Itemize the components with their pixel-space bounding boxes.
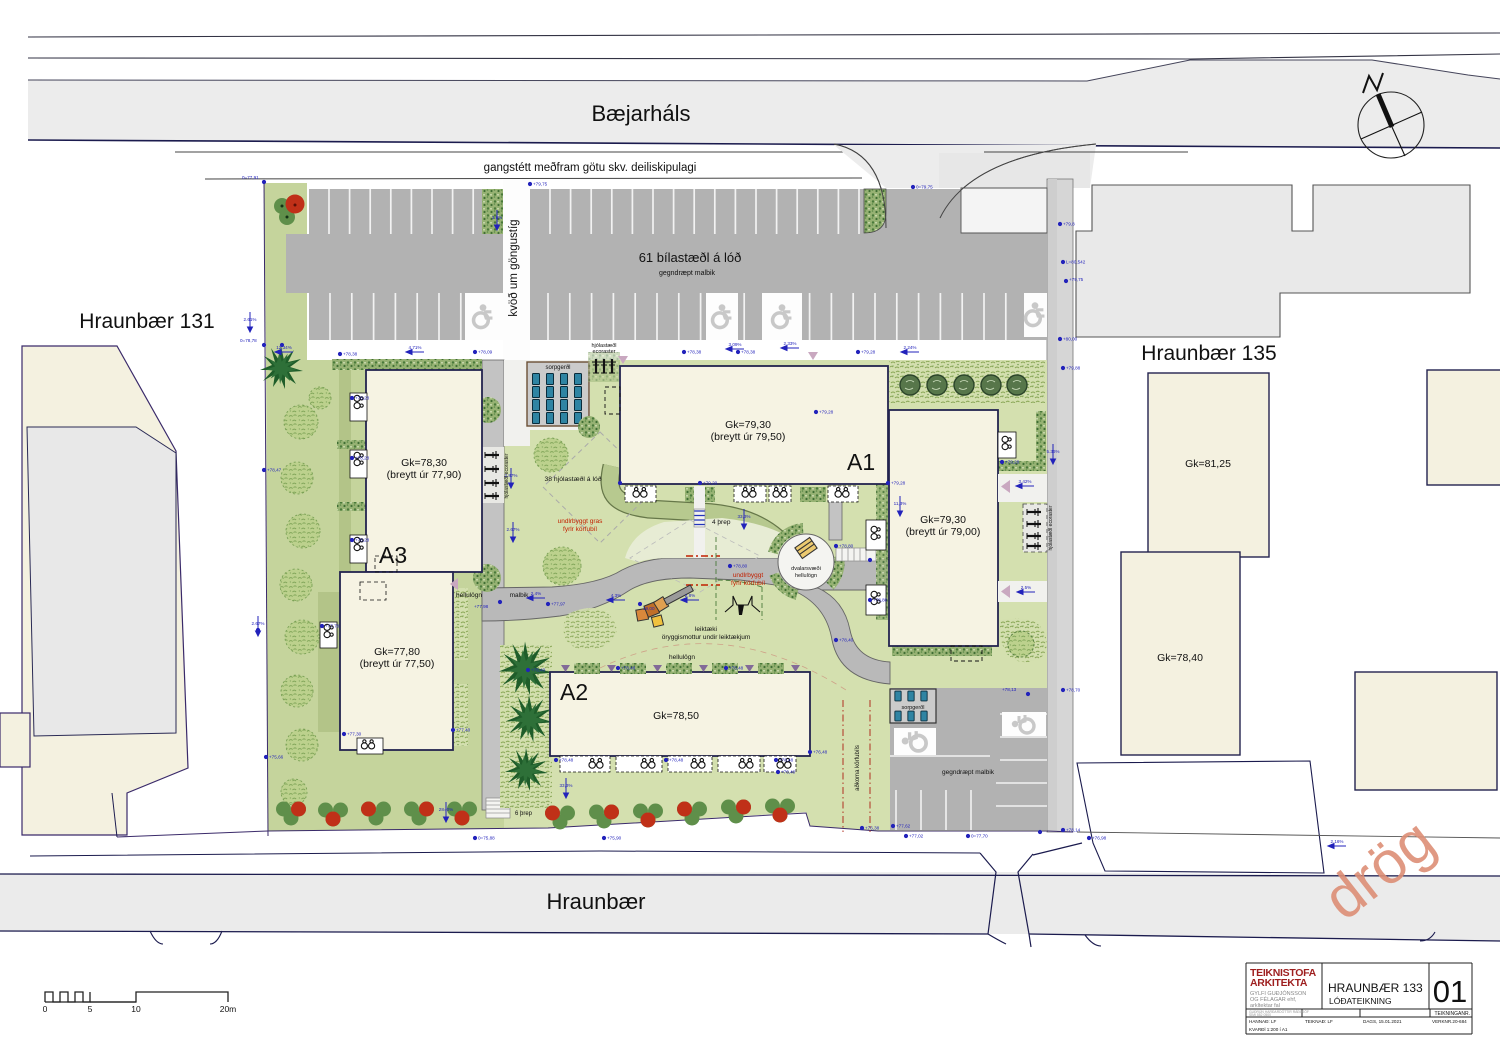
svg-text:+76,98: +76,98	[1092, 836, 1107, 841]
svg-text:0=77,91: 0=77,91	[242, 175, 259, 180]
svg-text:ecoraster: ecoraster	[593, 349, 616, 355]
svg-text:hjólastæðl ecoraster: hjólastæðl ecoraster	[1047, 505, 1054, 550]
svg-text:fyrlr körfubíl: fyrlr körfubíl	[563, 526, 598, 533]
svg-text:+78,38: +78,38	[741, 350, 756, 355]
svg-text:A3: A3	[379, 542, 407, 568]
svg-text:öryggismottur undir leiktækjum: öryggismottur undir leiktækjum	[662, 634, 751, 641]
svg-text:+78,48: +78,48	[779, 758, 794, 763]
svg-text:dvalarsvæði: dvalarsvæði	[791, 565, 821, 572]
svg-text:+76,40: +76,40	[781, 770, 796, 775]
svg-text:hellulögn: hellulögn	[795, 573, 817, 579]
svg-text:Bæjarháls: Bæjarháls	[591, 101, 690, 126]
svg-text:2.16%: 2.16%	[1330, 839, 1343, 844]
svg-text:0: 0	[43, 1004, 48, 1014]
svg-text:kvöð um göngustíg: kvöð um göngustíg	[508, 219, 520, 316]
svg-text:Gk=78,50: Gk=78,50	[653, 710, 699, 722]
svg-text:+79,28: +79,28	[861, 350, 876, 355]
svg-text:Gk=79,30: Gk=79,30	[725, 419, 771, 431]
svg-text:+78,48: +78,48	[669, 758, 684, 763]
svg-text:Hraunbær: Hraunbær	[546, 889, 645, 914]
svg-text:(breytt úr 79,50): (breytt úr 79,50)	[711, 431, 786, 443]
svg-text:TEIKNAÐ: LF: TEIKNAÐ: LF	[1305, 1019, 1333, 1024]
svg-text:+78,38: +78,38	[343, 352, 358, 357]
svg-text:+80,00: +80,00	[1063, 337, 1078, 342]
svg-text:sorpgerðl: sorpgerðl	[902, 704, 925, 711]
svg-text:+78,47: +78,47	[267, 468, 282, 473]
svg-text:GYLFI GUÐJÓNSSON: GYLFI GUÐJÓNSSON	[1250, 990, 1306, 997]
svg-text:hellulögn: hellulögn	[669, 654, 695, 661]
svg-text:+76,48: +76,48	[813, 750, 828, 755]
svg-text:Hraunbær 131: Hraunbær 131	[79, 310, 214, 333]
svg-text:ARKITEKTA: ARKITEKTA	[1250, 977, 1308, 989]
svg-text:+77,97: +77,97	[551, 602, 566, 607]
svg-text:12,34%: 12,34%	[276, 345, 292, 350]
svg-text:(breytt úr 77,50): (breytt úr 77,50)	[360, 658, 435, 670]
svg-text:fyrlr körfubíl: fyrlr körfubíl	[731, 580, 766, 587]
svg-text:L=80,542: L=80,542	[1066, 260, 1086, 265]
svg-text:19,00: 19,00	[643, 606, 655, 611]
svg-text:aðkoma körfubíls: aðkoma körfubíls	[854, 745, 861, 791]
svg-text:+79,8: +79,8	[1063, 222, 1075, 227]
svg-text:+75,90: +75,90	[607, 836, 622, 841]
svg-text:+79,75: +79,75	[533, 182, 548, 187]
svg-text:6 þrep: 6 þrep	[515, 811, 533, 817]
svg-text:+77,78: +77,78	[325, 624, 340, 629]
svg-text:sorpgerðl: sorpgerðl	[545, 364, 570, 371]
svg-text:DAGS, 15.01.2021: DAGS, 15.01.2021	[1363, 1019, 1402, 1024]
svg-text:(breytt úr 77,90): (breytt úr 77,90)	[387, 469, 462, 481]
svg-text:61 bílastæðl á lóð: 61 bílastæðl á lóð	[639, 250, 742, 265]
svg-text:VERKNR.20-684: VERKNR.20-684	[1432, 1019, 1467, 1024]
svg-text:gegndræpt malbik: gegndræpt malbik	[942, 769, 995, 776]
svg-text:+78,48: +78,48	[729, 666, 744, 671]
svg-text:3.09%: 3.09%	[728, 342, 741, 347]
svg-text:undlrbyggt: undlrbyggt	[733, 572, 764, 579]
svg-text:0=79,75: 0=79,75	[916, 185, 933, 190]
svg-text:+79,28: +79,28	[891, 481, 906, 486]
svg-text:Gk=79,30: Gk=79,30	[920, 514, 966, 526]
svg-text:+79,20: +79,20	[703, 481, 718, 486]
svg-text:Hraunbær 135: Hraunbær 135	[1141, 342, 1276, 365]
svg-text:+77,30: +77,30	[347, 732, 362, 737]
svg-text:+79,75: +79,75	[1069, 277, 1084, 282]
svg-text:Gk=78,40: Gk=78,40	[1157, 652, 1203, 664]
svg-text:+78,28: +78,28	[355, 456, 370, 461]
svg-text:Gk=78,30: Gk=78,30	[401, 457, 447, 469]
svg-text:+77,98: +77,98	[474, 604, 489, 609]
svg-text:leiktæki: leiktæki	[695, 626, 717, 633]
svg-text:+78,80: +78,80	[839, 544, 854, 549]
svg-text:+79,88: +79,88	[1066, 366, 1081, 371]
svg-text:TEIKNINGANR.: TEIKNINGANR.	[1434, 1011, 1470, 1017]
svg-text:+78,80: +78,80	[733, 564, 748, 569]
svg-text:5: 5	[88, 1004, 93, 1014]
svg-text:3.42%: 3.42%	[1018, 479, 1031, 484]
svg-text:38 hjólastæðl á lóð: 38 hjólastæðl á lóð	[544, 475, 601, 483]
svg-text:+75,66: +75,66	[269, 755, 284, 760]
svg-text:+78,40: +78,40	[839, 638, 854, 643]
svg-text:+77,62: +77,62	[896, 824, 911, 829]
svg-text:10: 10	[131, 1004, 141, 1014]
svg-text:+78,38: +78,38	[687, 350, 702, 355]
svg-text:2.33%: 2.33%	[783, 341, 796, 346]
svg-text:0=78,78: 0=78,78	[240, 338, 257, 343]
svg-text:+78,09: +78,09	[478, 350, 493, 355]
svg-text:Gk=81,25: Gk=81,25	[1185, 458, 1231, 470]
svg-text:LÓÐATEIKNING: LÓÐATEIKNING	[1329, 996, 1392, 1006]
svg-text:arkltektar fal: arkltektar fal	[1250, 1003, 1280, 1009]
svg-text:4 þrep: 4 þrep	[712, 519, 731, 526]
svg-text:0=75,88: 0=75,88	[478, 836, 495, 841]
svg-text:+77,02: +77,02	[909, 834, 924, 839]
svg-text:gangstétt meðfram götu skv. de: gangstétt meðfram götu skv. deiliskipula…	[484, 162, 697, 174]
svg-text:+78,48: +78,48	[621, 666, 636, 671]
svg-text:undlrbyggt gras: undlrbyggt gras	[558, 518, 604, 525]
svg-text:0=77,70: 0=77,70	[971, 834, 988, 839]
svg-text:KVARÐl 1:200 í A1: KVARÐl 1:200 í A1	[1249, 1027, 1288, 1032]
svg-text:hjólastæðl: hjólastæðl	[591, 342, 616, 349]
svg-text:+78,48: +78,48	[559, 758, 574, 763]
svg-text:A1: A1	[847, 449, 875, 475]
svg-text:HANNAÐ: LF: HANNAÐ: LF	[1249, 1019, 1277, 1024]
svg-text:+78,28: +78,28	[355, 538, 370, 543]
svg-text:Gk=77,80: Gk=77,80	[374, 646, 420, 658]
svg-text:+77,40: +77,40	[456, 728, 471, 733]
svg-text:+76,38: +76,38	[865, 826, 880, 831]
svg-text:2.24%: 2.24%	[903, 345, 916, 350]
svg-text:+78,70: +78,70	[1066, 688, 1081, 693]
svg-text:+78,28: +78,28	[355, 396, 370, 401]
svg-text:4.71%: 4.71%	[408, 345, 421, 350]
svg-text:A2: A2	[560, 679, 588, 705]
svg-text:20m: 20m	[220, 1004, 237, 1014]
svg-text:(breytt úr 79,00): (breytt úr 79,00)	[906, 526, 981, 538]
svg-text:+79,28: +79,28	[1005, 460, 1020, 465]
svg-text:+78,80: +78,80	[873, 598, 888, 603]
svg-text:01: 01	[1433, 974, 1467, 1009]
svg-text:gegndræpt malbik: gegndræpt malbik	[659, 270, 716, 277]
svg-text:+78,40: +78,40	[531, 668, 546, 673]
svg-text:HRAUNBÆR 133: HRAUNBÆR 133	[1328, 981, 1423, 995]
svg-text:OG FÉLAGAR ehf,: OG FÉLAGAR ehf,	[1250, 996, 1297, 1003]
svg-text:+79,28: +79,28	[819, 410, 834, 415]
svg-text:SÍMI 552 0500: SÍMI 552 0500	[1249, 1013, 1271, 1017]
svg-text:hellulögn: hellulögn	[456, 592, 482, 599]
svg-text:+78,14: +78,14	[1066, 828, 1081, 833]
svg-text:+78,13: +78,13	[1002, 687, 1017, 692]
